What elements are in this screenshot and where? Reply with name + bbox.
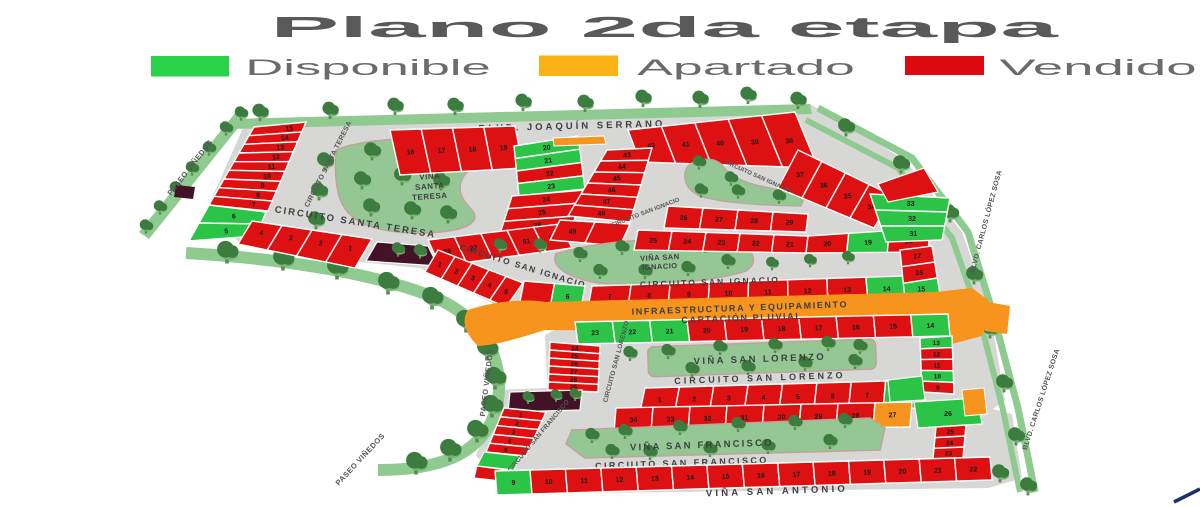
svg-text:1: 1 <box>658 397 662 404</box>
svg-text:12: 12 <box>272 154 280 162</box>
svg-text:29: 29 <box>785 220 793 227</box>
svg-text:32: 32 <box>704 416 712 423</box>
svg-text:51: 51 <box>522 238 531 246</box>
svg-text:14: 14 <box>883 286 891 293</box>
svg-text:16: 16 <box>757 473 765 480</box>
svg-text:5: 5 <box>796 394 800 401</box>
svg-text:28: 28 <box>750 218 758 225</box>
svg-text:33: 33 <box>907 201 915 208</box>
svg-text:43: 43 <box>623 152 631 160</box>
svg-text:23: 23 <box>717 240 725 247</box>
svg-text:20: 20 <box>823 241 831 248</box>
svg-text:9: 9 <box>512 480 516 487</box>
svg-text:15: 15 <box>722 474 730 481</box>
svg-text:6: 6 <box>831 393 835 400</box>
svg-text:27: 27 <box>715 217 723 224</box>
svg-text:16: 16 <box>852 324 860 331</box>
svg-text:46: 46 <box>608 187 616 195</box>
svg-text:23: 23 <box>547 183 556 191</box>
svg-text:6: 6 <box>232 213 237 220</box>
svg-text:16: 16 <box>915 270 923 277</box>
svg-text:26: 26 <box>944 411 952 418</box>
svg-text:18: 18 <box>468 146 476 154</box>
svg-text:30: 30 <box>778 414 786 421</box>
svg-text:Vendido: Vendido <box>999 55 1196 80</box>
svg-text:22: 22 <box>628 329 636 336</box>
svg-text:17: 17 <box>815 325 823 332</box>
svg-text:21: 21 <box>934 467 942 474</box>
svg-text:18: 18 <box>828 471 836 478</box>
svg-text:19: 19 <box>740 327 748 334</box>
svg-text:4: 4 <box>761 395 765 402</box>
svg-text:34: 34 <box>630 417 638 424</box>
svg-text:24: 24 <box>683 239 691 246</box>
svg-text:40: 40 <box>716 140 724 148</box>
svg-text:IGNACIO: IGNACIO <box>642 261 678 272</box>
svg-text:15: 15 <box>918 286 926 293</box>
svg-text:15: 15 <box>285 125 293 133</box>
svg-text:Apartado: Apartado <box>637 55 855 80</box>
svg-text:10: 10 <box>934 374 942 381</box>
svg-text:24: 24 <box>946 440 954 447</box>
svg-text:14: 14 <box>686 475 694 482</box>
svg-text:45: 45 <box>613 175 621 183</box>
svg-text:16: 16 <box>406 149 414 157</box>
svg-text:7: 7 <box>865 393 869 400</box>
svg-text:Disponible: Disponible <box>245 55 490 80</box>
svg-text:9: 9 <box>936 385 940 392</box>
svg-text:2: 2 <box>692 396 696 403</box>
svg-text:11: 11 <box>268 164 276 172</box>
svg-text:12: 12 <box>616 477 624 484</box>
svg-text:25: 25 <box>538 209 547 217</box>
svg-text:38: 38 <box>785 138 793 146</box>
svg-text:14: 14 <box>926 323 934 330</box>
svg-text:10: 10 <box>725 290 733 297</box>
svg-text:Plano 2da etapa: Plano 2da etapa <box>270 11 1059 43</box>
svg-text:7: 7 <box>608 294 612 301</box>
svg-text:22: 22 <box>752 241 760 248</box>
svg-text:13: 13 <box>276 144 284 152</box>
svg-text:23: 23 <box>945 451 953 458</box>
svg-text:18: 18 <box>777 326 785 333</box>
svg-text:44: 44 <box>618 164 626 172</box>
svg-text:23: 23 <box>591 330 599 337</box>
svg-text:11: 11 <box>580 478 588 485</box>
svg-text:32: 32 <box>908 216 916 223</box>
svg-text:17: 17 <box>792 472 800 479</box>
svg-text:37: 37 <box>796 172 804 180</box>
svg-text:36: 36 <box>820 182 828 190</box>
svg-text:14: 14 <box>281 135 289 143</box>
svg-text:33: 33 <box>667 416 675 423</box>
svg-text:17: 17 <box>437 148 445 156</box>
svg-text:12: 12 <box>933 351 941 358</box>
svg-text:3: 3 <box>727 396 731 403</box>
svg-text:22: 22 <box>969 466 977 473</box>
svg-text:17: 17 <box>913 254 921 261</box>
svg-text:21: 21 <box>786 241 794 248</box>
svg-text:10: 10 <box>545 479 553 486</box>
svg-text:49: 49 <box>568 228 576 236</box>
svg-text:13: 13 <box>843 287 851 294</box>
svg-text:7: 7 <box>252 202 257 209</box>
svg-text:41: 41 <box>682 141 690 149</box>
svg-text:10: 10 <box>263 173 271 181</box>
svg-text:13: 13 <box>933 340 941 347</box>
svg-text:24: 24 <box>542 196 551 204</box>
svg-text:6: 6 <box>566 294 570 301</box>
svg-text:25: 25 <box>649 238 657 245</box>
svg-text:31: 31 <box>909 231 917 238</box>
svg-text:8: 8 <box>256 192 261 199</box>
svg-text:11: 11 <box>764 289 772 296</box>
svg-text:19: 19 <box>863 469 871 476</box>
svg-text:9: 9 <box>260 183 265 190</box>
svg-text:39: 39 <box>751 139 759 147</box>
svg-text:26: 26 <box>680 215 688 222</box>
svg-text:47: 47 <box>602 199 610 207</box>
svg-text:5: 5 <box>224 228 229 235</box>
svg-text:19: 19 <box>499 145 507 153</box>
svg-text:21: 21 <box>666 328 674 335</box>
svg-text:25: 25 <box>947 429 955 436</box>
svg-text:13: 13 <box>651 476 659 483</box>
svg-text:12: 12 <box>804 288 812 295</box>
svg-text:20: 20 <box>543 144 552 152</box>
svg-text:9: 9 <box>687 292 691 299</box>
svg-text:15: 15 <box>889 323 897 330</box>
svg-text:27: 27 <box>889 412 897 419</box>
svg-text:21: 21 <box>544 157 553 165</box>
svg-text:20: 20 <box>703 327 711 334</box>
svg-text:8: 8 <box>647 293 651 300</box>
svg-text:35: 35 <box>844 193 852 201</box>
svg-text:19: 19 <box>864 240 872 247</box>
svg-text:20: 20 <box>899 468 907 475</box>
svg-text:11: 11 <box>934 363 941 370</box>
svg-text:22: 22 <box>546 170 555 178</box>
svg-text:48: 48 <box>597 210 605 218</box>
